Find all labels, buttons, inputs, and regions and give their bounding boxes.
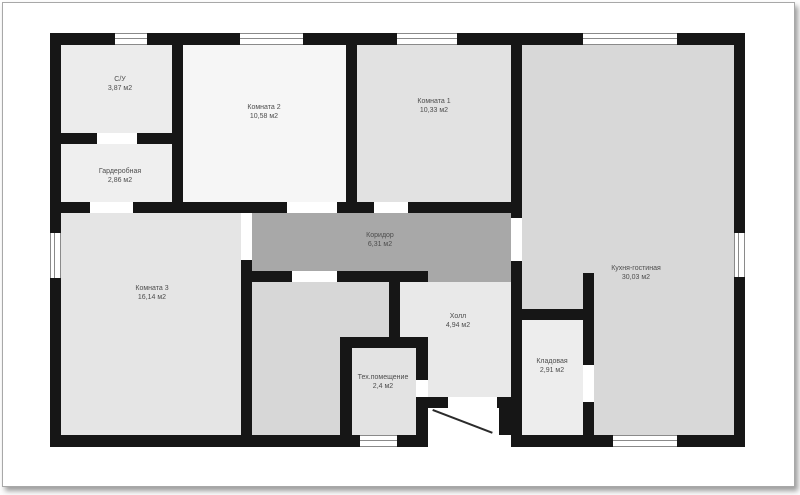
wall-segment xyxy=(61,133,97,144)
door-opening-tehpomeshchenie xyxy=(416,380,428,397)
room-area: 2,4 м2 xyxy=(358,382,409,391)
wall-segment xyxy=(583,402,594,435)
room-label-kuhnya-gostinaya: Кухня-гостиная 30,03 м2 xyxy=(611,264,661,282)
room-area: 2,91 м2 xyxy=(536,366,567,375)
wall-segment xyxy=(511,309,594,320)
room-name: Коридор xyxy=(366,231,394,240)
room-label-koridor: Коридор 6,31 м2 xyxy=(366,231,394,249)
room-label-komnata3: Комната 3 16,14 м2 xyxy=(135,284,168,302)
window xyxy=(397,33,457,45)
door-opening-kladovaya xyxy=(583,365,594,402)
wall-segment xyxy=(416,348,428,380)
wall-segment xyxy=(337,202,374,213)
room-tehpomeshchenie xyxy=(352,348,416,435)
room-name: Тех.помещение xyxy=(358,373,409,382)
door-opening-komnata3 xyxy=(241,213,252,260)
room-name: Комната 2 xyxy=(247,103,280,112)
room-label-holl: Холл 4,94 м2 xyxy=(446,312,470,330)
room-area: 3,87 м2 xyxy=(108,84,132,93)
wall-segment xyxy=(416,408,428,435)
wall-segment xyxy=(499,408,511,435)
room-kladovaya xyxy=(522,320,583,435)
wall-segment xyxy=(408,202,522,213)
room-su xyxy=(61,45,172,144)
door-opening-backroom xyxy=(292,271,337,282)
window xyxy=(613,435,677,447)
wall-segment xyxy=(416,397,448,408)
wall-segment xyxy=(137,133,183,144)
room-area: 10,58 м2 xyxy=(247,112,280,121)
room-komnata3 xyxy=(61,213,241,435)
room-label-komnata1: Комната 1 10,33 м2 xyxy=(417,97,450,115)
floor-plan: С/У 3,87 м2 Гардеробная 2,86 м2 Комната … xyxy=(0,0,800,495)
room-area: 16,14 м2 xyxy=(135,293,168,302)
wall-segment xyxy=(346,45,357,213)
room-area: 30,03 м2 xyxy=(611,273,661,282)
room-komnata1 xyxy=(357,45,511,213)
room-area: 2,86 м2 xyxy=(99,176,141,185)
room-area: 6,31 м2 xyxy=(366,240,394,249)
room-name: Комната 1 xyxy=(417,97,450,106)
door-opening-komnata1 xyxy=(374,202,408,213)
window xyxy=(115,33,147,45)
window xyxy=(734,233,745,277)
room-name: С/У xyxy=(108,75,132,84)
room-area: 4,94 м2 xyxy=(446,321,470,330)
room-name: Холл xyxy=(446,312,470,321)
window xyxy=(583,33,677,45)
wall-segment xyxy=(497,397,511,408)
wall-segment xyxy=(511,45,522,218)
door-opening-komnata2 xyxy=(287,202,337,213)
room-label-garderobnaya: Гардеробная 2,86 м2 xyxy=(99,167,141,185)
window xyxy=(50,233,61,278)
wall-segment xyxy=(50,202,90,213)
door-opening-entrance xyxy=(448,397,497,408)
room-label-su: С/У 3,87 м2 xyxy=(108,75,132,93)
room-name: Гардеробная xyxy=(99,167,141,176)
door-opening-su xyxy=(97,133,137,144)
wall-segment xyxy=(511,261,522,435)
wall-segment xyxy=(241,260,252,435)
room-label-komnata2: Комната 2 10,58 м2 xyxy=(247,103,280,121)
wall-segment xyxy=(340,337,352,435)
wall-segment xyxy=(172,45,183,213)
room-name: Кладовая xyxy=(536,357,567,366)
wall-segment xyxy=(340,337,428,348)
room-name: Кухня-гостиная xyxy=(611,264,661,273)
wall-segment xyxy=(241,271,292,282)
wall-segment xyxy=(133,202,287,213)
room-komnata2 xyxy=(183,45,346,213)
room-name: Комната 3 xyxy=(135,284,168,293)
wall-segment xyxy=(337,271,428,282)
window xyxy=(360,435,397,447)
window xyxy=(240,33,303,45)
door-opening-garderobnaya xyxy=(90,202,133,213)
room-label-kladovaya: Кладовая 2,91 м2 xyxy=(536,357,567,375)
room-area: 10,33 м2 xyxy=(417,106,450,115)
door-opening-kuhnya xyxy=(511,218,522,261)
room-label-tehpomeshchenie: Тех.помещение 2,4 м2 xyxy=(358,373,409,391)
